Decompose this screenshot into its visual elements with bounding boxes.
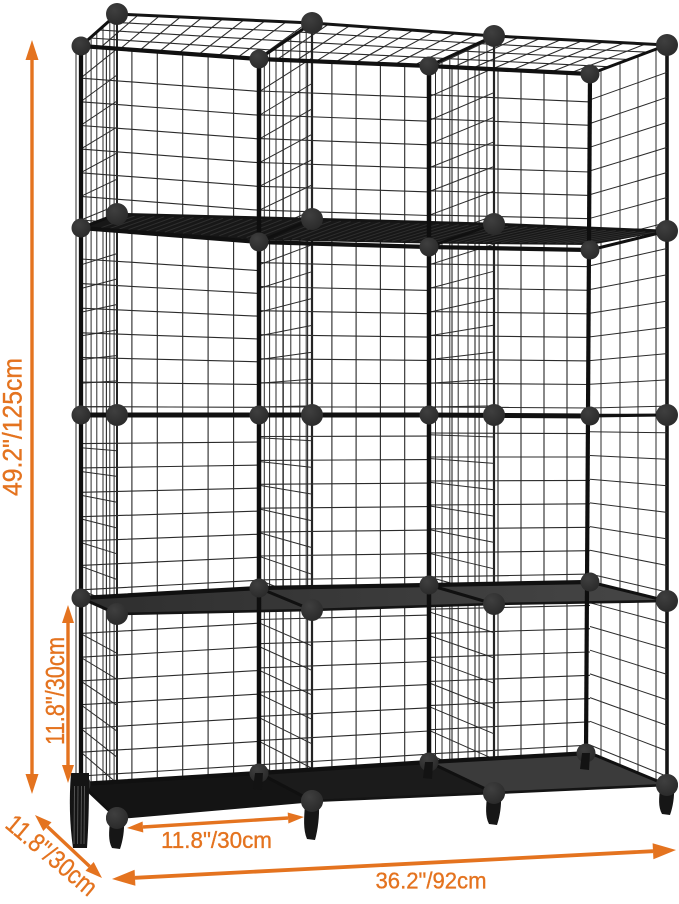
- svg-text:11.8"/30cm: 11.8"/30cm: [40, 637, 70, 745]
- svg-text:36.2"/92cm: 36.2"/92cm: [376, 868, 487, 894]
- svg-text:11.8"/30cm: 11.8"/30cm: [161, 827, 272, 853]
- svg-text:49.2"/125cm: 49.2"/125cm: [0, 358, 28, 496]
